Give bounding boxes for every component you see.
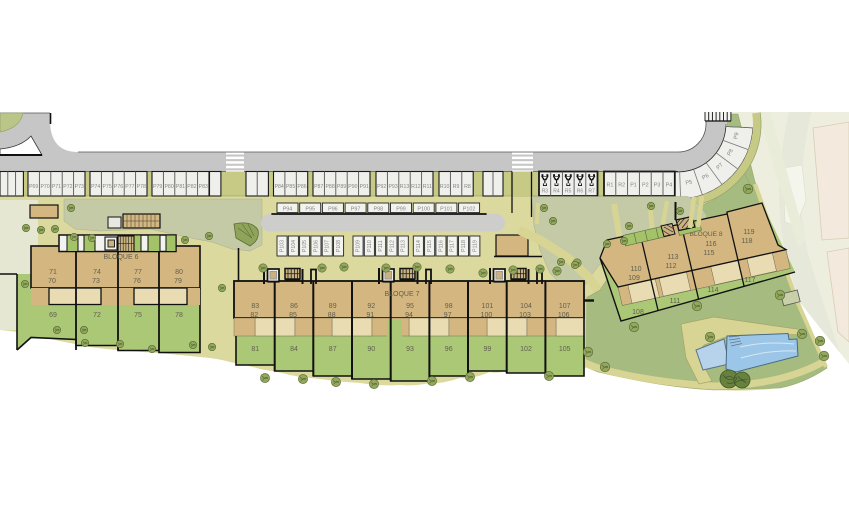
svg-text:R1: R1 — [606, 183, 613, 189]
svg-text:P99: P99 — [396, 206, 406, 212]
svg-text:P118: P118 — [461, 240, 467, 252]
svg-text:115: 115 — [703, 250, 714, 257]
svg-text:P112: P112 — [389, 240, 395, 252]
svg-text:110: 110 — [630, 266, 641, 273]
svg-text:94: 94 — [405, 312, 413, 319]
svg-text:R7: R7 — [588, 189, 595, 195]
svg-text:P100: P100 — [417, 206, 430, 212]
svg-text:88: 88 — [328, 312, 336, 319]
svg-text:P117: P117 — [450, 240, 456, 252]
svg-text:75: 75 — [134, 312, 142, 319]
svg-text:83: 83 — [251, 303, 259, 310]
svg-text:P107: P107 — [325, 240, 331, 252]
svg-text:P75: P75 — [102, 184, 111, 190]
svg-text:103: 103 — [519, 312, 531, 319]
svg-text:P106: P106 — [313, 240, 319, 252]
svg-text:R13: R13 — [400, 184, 410, 190]
svg-text:P110: P110 — [367, 240, 373, 252]
svg-text:95: 95 — [406, 303, 414, 310]
svg-text:R10: R10 — [440, 184, 450, 190]
svg-text:77: 77 — [134, 269, 142, 276]
svg-text:P83: P83 — [199, 184, 208, 190]
svg-text:P108: P108 — [336, 240, 342, 252]
svg-text:72: 72 — [93, 312, 101, 319]
svg-text:69: 69 — [49, 312, 57, 319]
svg-text:R3: R3 — [542, 189, 549, 195]
svg-text:104: 104 — [520, 303, 532, 310]
svg-text:P84: P84 — [275, 184, 284, 190]
svg-text:90: 90 — [367, 346, 375, 353]
svg-text:P114: P114 — [416, 240, 422, 252]
svg-text:106: 106 — [558, 312, 570, 319]
svg-text:P98: P98 — [374, 206, 384, 212]
svg-text:91: 91 — [366, 312, 374, 319]
svg-text:P102: P102 — [463, 206, 476, 212]
svg-text:P101: P101 — [440, 206, 453, 212]
svg-text:105: 105 — [559, 346, 571, 353]
svg-text:70: 70 — [48, 278, 56, 285]
svg-text:71: 71 — [49, 269, 57, 276]
svg-text:102: 102 — [520, 346, 532, 353]
svg-text:97: 97 — [444, 312, 452, 319]
svg-text:76: 76 — [133, 278, 141, 285]
svg-text:85: 85 — [289, 312, 297, 319]
svg-text:79: 79 — [174, 278, 182, 285]
svg-text:74: 74 — [93, 269, 101, 276]
svg-text:P1: P1 — [630, 183, 637, 189]
svg-text:P72: P72 — [63, 184, 72, 190]
svg-text:P111: P111 — [378, 240, 384, 251]
svg-text:P94: P94 — [283, 206, 293, 212]
svg-text:P77: P77 — [125, 184, 134, 190]
svg-text:P81: P81 — [176, 184, 185, 190]
svg-text:98: 98 — [445, 303, 453, 310]
svg-text:111: 111 — [670, 298, 681, 305]
svg-text:108: 108 — [632, 309, 644, 316]
svg-text:P69: P69 — [29, 184, 38, 190]
svg-text:R5: R5 — [565, 189, 572, 195]
svg-text:100: 100 — [481, 312, 493, 319]
svg-text:117: 117 — [744, 277, 755, 284]
svg-text:P115: P115 — [427, 240, 433, 252]
svg-text:109: 109 — [628, 275, 640, 282]
svg-text:99: 99 — [484, 346, 492, 353]
svg-text:R12: R12 — [411, 184, 421, 190]
svg-text:P87: P87 — [314, 184, 323, 190]
svg-text:84: 84 — [290, 346, 298, 353]
svg-text:P97: P97 — [351, 206, 361, 212]
svg-text:P5: P5 — [685, 179, 693, 186]
svg-text:P89: P89 — [337, 184, 346, 190]
svg-text:R9: R9 — [453, 184, 460, 190]
svg-text:81: 81 — [251, 346, 259, 353]
svg-text:BLOQUE 7: BLOQUE 7 — [384, 291, 419, 298]
svg-text:82: 82 — [250, 312, 258, 319]
svg-text:P80: P80 — [164, 184, 173, 190]
svg-text:R2: R2 — [618, 183, 625, 189]
svg-text:92: 92 — [367, 303, 375, 310]
svg-text:R4: R4 — [553, 189, 560, 195]
svg-text:112: 112 — [665, 263, 676, 270]
svg-text:P95: P95 — [305, 206, 315, 212]
svg-text:P82: P82 — [187, 184, 196, 190]
svg-text:P113: P113 — [401, 240, 407, 252]
svg-text:93: 93 — [406, 346, 414, 353]
svg-text:87: 87 — [329, 346, 337, 353]
svg-text:P78: P78 — [137, 184, 146, 190]
svg-text:P93: P93 — [388, 184, 397, 190]
svg-text:P79: P79 — [153, 184, 162, 190]
svg-text:78: 78 — [175, 312, 183, 319]
svg-text:P91: P91 — [360, 184, 369, 190]
svg-text:119: 119 — [743, 229, 754, 236]
svg-text:R6: R6 — [577, 189, 584, 195]
svg-text:P70: P70 — [40, 184, 49, 190]
svg-text:P105: P105 — [302, 240, 308, 252]
svg-text:P96: P96 — [328, 206, 338, 212]
svg-text:107: 107 — [559, 303, 571, 310]
svg-text:P74: P74 — [91, 184, 100, 190]
svg-text:P71: P71 — [52, 184, 61, 190]
svg-text:101: 101 — [482, 303, 494, 310]
svg-text:R8: R8 — [464, 184, 471, 190]
svg-text:80: 80 — [175, 269, 183, 276]
svg-text:P103: P103 — [280, 240, 286, 252]
svg-text:P119: P119 — [472, 240, 478, 252]
svg-text:BLOQUE 6: BLOQUE 6 — [103, 254, 138, 261]
svg-text:73: 73 — [92, 278, 100, 285]
svg-text:116: 116 — [705, 241, 716, 248]
svg-text:R11: R11 — [423, 184, 432, 190]
svg-text:118: 118 — [741, 238, 752, 245]
svg-text:P76: P76 — [114, 184, 123, 190]
svg-text:P116: P116 — [438, 240, 444, 252]
svg-text:P88: P88 — [325, 184, 334, 190]
svg-text:P109: P109 — [356, 240, 362, 252]
svg-text:P4: P4 — [666, 183, 673, 189]
svg-text:86: 86 — [290, 303, 298, 310]
svg-text:89: 89 — [329, 303, 337, 310]
svg-text:P2: P2 — [642, 183, 649, 189]
svg-text:P92: P92 — [377, 184, 386, 190]
svg-text:P85: P85 — [286, 184, 295, 190]
svg-text:96: 96 — [445, 346, 453, 353]
svg-text:113: 113 — [667, 254, 678, 261]
svg-text:P86: P86 — [297, 184, 306, 190]
svg-text:P73: P73 — [75, 184, 84, 190]
svg-text:P104: P104 — [291, 240, 297, 252]
svg-text:114: 114 — [707, 287, 718, 294]
svg-text:P3: P3 — [654, 183, 661, 189]
svg-text:P90: P90 — [348, 184, 357, 190]
